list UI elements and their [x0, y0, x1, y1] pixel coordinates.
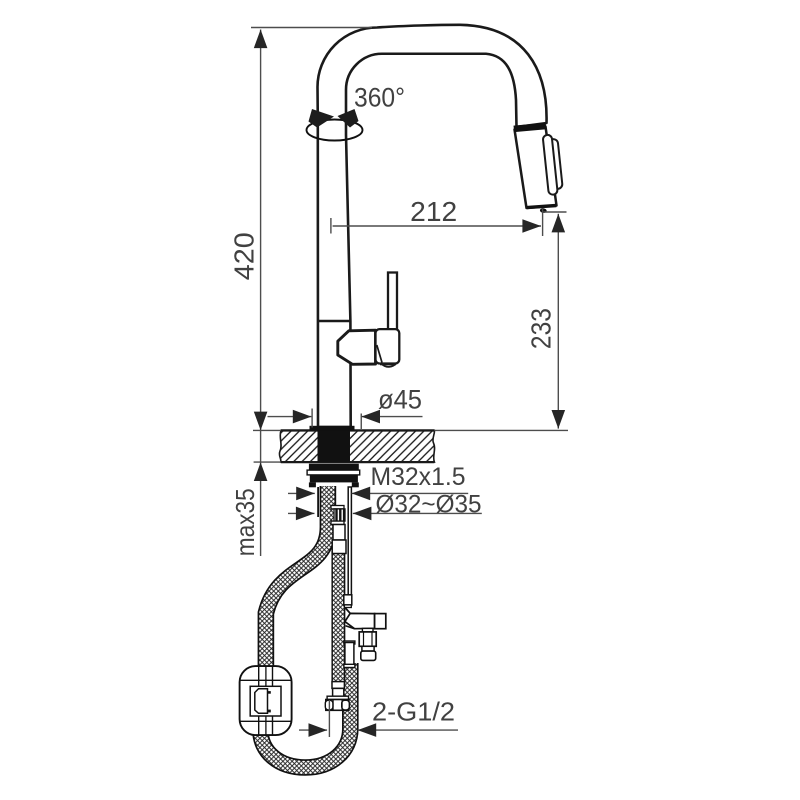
svg-text:max35: max35: [230, 488, 260, 556]
svg-text:2-G1/2: 2-G1/2: [372, 696, 455, 726]
svg-text:233: 233: [525, 308, 556, 349]
svg-text:420: 420: [228, 232, 259, 280]
svg-text:212: 212: [410, 196, 457, 227]
svg-text:Ø32~Ø35: Ø32~Ø35: [376, 491, 482, 519]
svg-text:M32x1.5: M32x1.5: [371, 463, 466, 491]
svg-text:ø45: ø45: [378, 385, 422, 415]
svg-text:360°: 360°: [354, 83, 405, 113]
